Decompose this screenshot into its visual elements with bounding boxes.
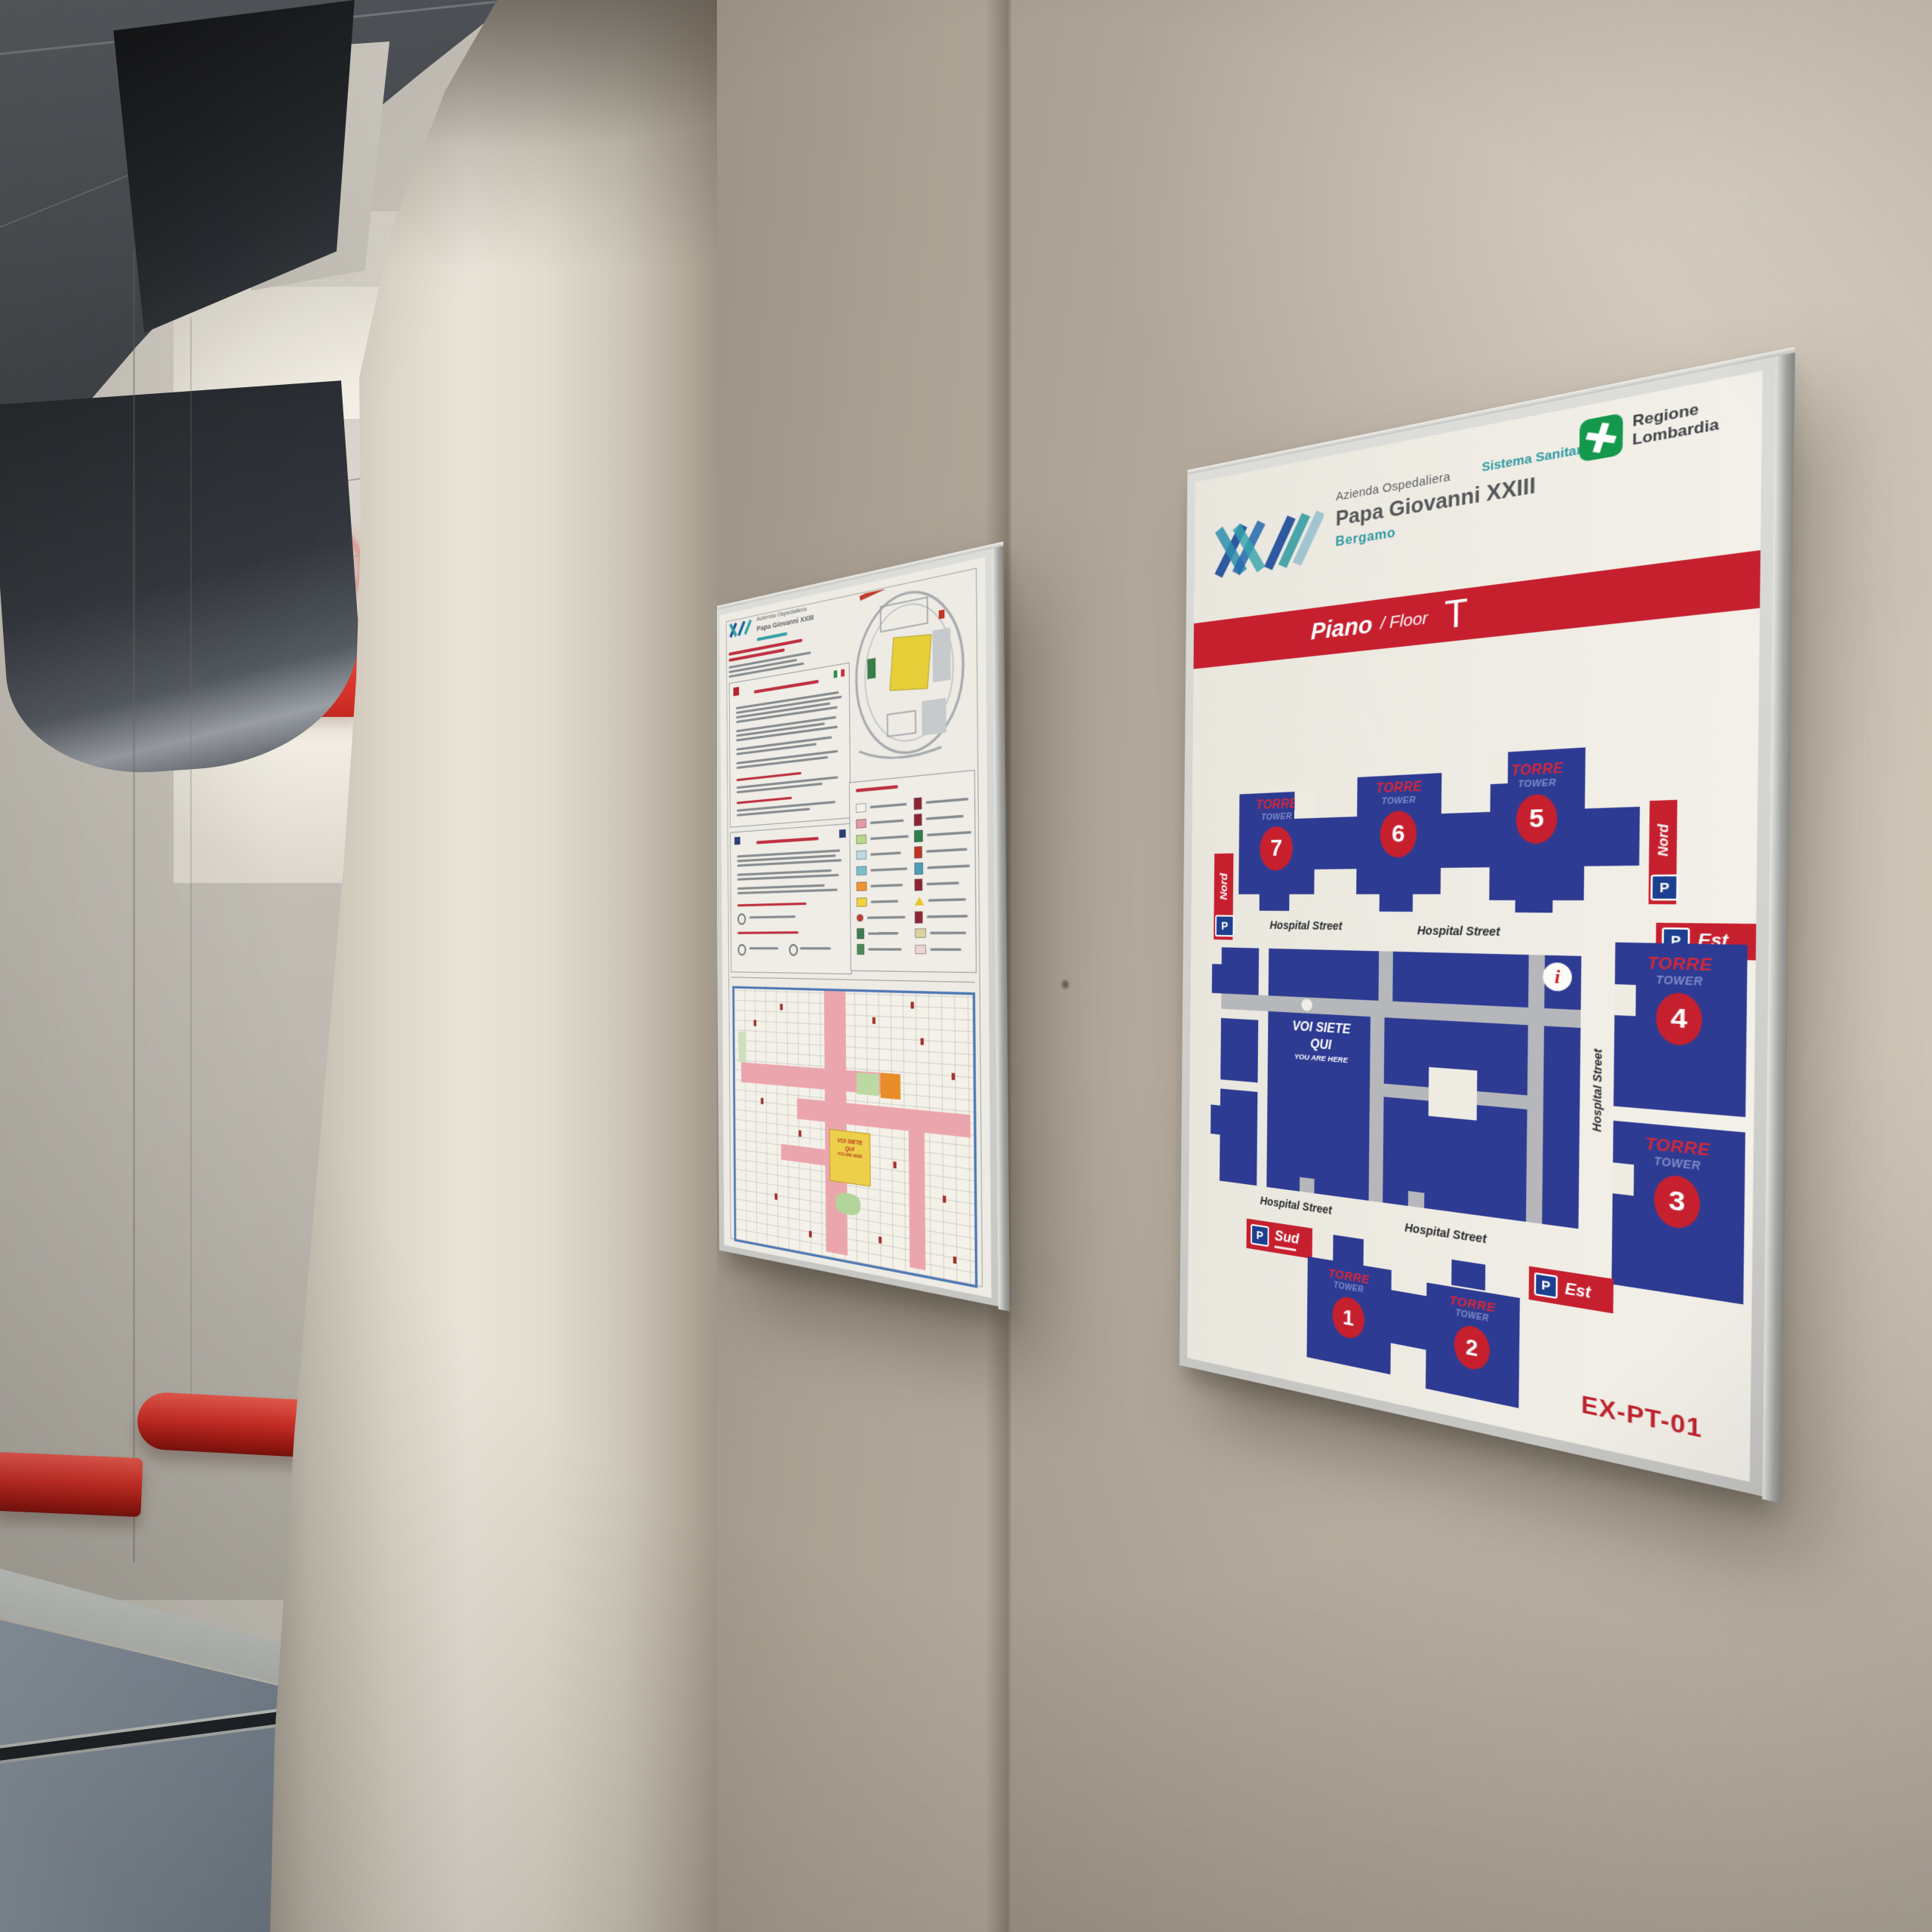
- blurred-label: [930, 931, 966, 934]
- door-tick: [921, 1038, 924, 1045]
- legend-row: [857, 925, 909, 942]
- street-label-vertical: Hospital Street: [1579, 990, 1615, 1192]
- door-tick: [809, 1231, 812, 1238]
- blurred-label: [927, 831, 971, 836]
- blurred-label: [871, 900, 898, 903]
- floor-bar-text: Piano / Floor T: [1311, 588, 1469, 657]
- regione-lombardia-label: Regione Lombardia: [1632, 396, 1719, 450]
- parking-label: Sud: [1275, 1227, 1300, 1247]
- blurred-subtitle: [737, 903, 806, 907]
- legend-row: [857, 877, 909, 895]
- tower-sublabel: TOWER: [1656, 974, 1703, 988]
- legend-ring-icon: [789, 944, 798, 956]
- floor-label-it: Piano: [1311, 611, 1373, 646]
- corner-icon: [734, 837, 740, 845]
- legend-swatch: [915, 878, 923, 891]
- tower-sublabel: TOWER: [1261, 812, 1292, 823]
- floor-plan: VOI SIETE QUI YOU ARE HERE: [732, 986, 977, 1288]
- blurred-label: [867, 916, 906, 919]
- parking-label: Nord: [1218, 872, 1230, 900]
- blurred-label: [927, 881, 959, 885]
- legend-row: [914, 857, 971, 876]
- blurred-text-line: [737, 888, 838, 894]
- street-label: Hospital Street: [1269, 918, 1342, 932]
- building-block: [1220, 1018, 1258, 1083]
- floor-map-sign: Azienda Ospedaliera Papa Giovanni XXIII …: [1180, 356, 1776, 1496]
- ceiling-mounted-fixture: [0, 380, 368, 782]
- orange-room: [881, 1072, 901, 1100]
- legend-swatch: [857, 914, 863, 921]
- building-notch: [1491, 752, 1508, 784]
- corridor-highlight: [781, 1144, 827, 1166]
- parking-p-icon: P: [1534, 1272, 1558, 1299]
- building-notch: [1294, 791, 1315, 819]
- parking-nord-right: Nord P: [1648, 800, 1677, 904]
- blurred-label: [870, 851, 901, 856]
- blurred-label: [927, 915, 968, 918]
- blurred-label: [871, 884, 903, 888]
- blurred-label: [926, 848, 967, 853]
- legend-swatch: [857, 944, 864, 955]
- regione-lombardia-logo: [1580, 413, 1623, 463]
- blurred-label: [868, 948, 902, 950]
- legend-swatch: [856, 851, 866, 860]
- tower-1: TORRE TOWER 1: [1307, 1257, 1392, 1374]
- corridor-highlight: [909, 1131, 925, 1271]
- legend-column-left: [856, 796, 909, 958]
- tower-number: 7: [1260, 826, 1293, 870]
- tower-6: TORRE TOWER 6: [1356, 773, 1441, 894]
- legend-row: [915, 908, 972, 925]
- street-notch: [1408, 1191, 1425, 1208]
- campus-site-map: [848, 571, 973, 774]
- legend-swatch: [857, 881, 867, 891]
- floor-letter: T: [1444, 589, 1468, 638]
- campus-map-sign: Azienda Ospedaliera Papa Giovanni XXIII: [715, 549, 998, 1306]
- blurred-label: [926, 798, 969, 804]
- street-label: Hospital Street: [1589, 1048, 1604, 1132]
- door-tick: [774, 1193, 777, 1200]
- building-block: [1211, 1105, 1220, 1135]
- tower-4: TORRE TOWER 4: [1614, 943, 1747, 1118]
- building-notch: [1614, 984, 1635, 1016]
- blurred-label: [931, 948, 961, 951]
- legend-swatch: [914, 813, 922, 826]
- parking-sud-text: Sud: [1275, 1227, 1300, 1251]
- legend-swatch: [914, 829, 923, 842]
- blurred-subtitle: [737, 772, 801, 781]
- parking-sud: P Sud: [1246, 1219, 1312, 1259]
- tower-number: 1: [1332, 1294, 1364, 1341]
- legend-ring-icon: [737, 913, 746, 924]
- legend-swatch: [857, 897, 867, 906]
- parking-p-icon: P: [1215, 915, 1234, 937]
- xxiii-logo: [1213, 491, 1324, 581]
- legend-ring-icon: [738, 944, 746, 955]
- blurred-label: [870, 820, 904, 825]
- courtyard: [1429, 1067, 1478, 1121]
- blurred-text-line: [737, 884, 825, 890]
- street-label: Hospital Street: [1404, 1220, 1487, 1246]
- parking-label: Est: [1564, 1279, 1591, 1302]
- parking-label: Nord: [1654, 823, 1672, 857]
- blurred-label: [870, 803, 907, 808]
- blurred-text-line: [749, 947, 778, 949]
- you-are-here-dot: [1301, 998, 1312, 1011]
- legend-row: [857, 893, 909, 910]
- building-connector: [1391, 1290, 1426, 1349]
- blurred-label: [926, 815, 964, 820]
- legend-row: [915, 891, 972, 909]
- tower-number: 3: [1654, 1174, 1700, 1231]
- legend-swatch: [856, 835, 866, 844]
- legend-row: [915, 874, 972, 893]
- hospital-corridor-photo: Azienda Ospedaliera Papa Giovanni XXIII: [0, 0, 1932, 1932]
- warning-triangle-icon: [915, 897, 924, 906]
- sign-face: Azienda Ospedaliera Papa Giovanni XXIII: [720, 557, 992, 1298]
- green-area: [738, 1032, 746, 1063]
- legend-swatch: [914, 846, 922, 858]
- blurred-label: [927, 865, 970, 869]
- you-are-here-box: VOI SIETE QUI YOU ARE HERE: [829, 1129, 871, 1187]
- door-tick: [761, 1098, 764, 1105]
- tower-number: 6: [1380, 811, 1417, 858]
- floor-map: TORRE TOWER 7 TORRE TOWER 6 TORRE TOWER …: [1207, 718, 1752, 1446]
- green-area: [857, 1072, 879, 1096]
- street-label: Hospital Street: [1260, 1194, 1332, 1217]
- tower-number: 5: [1516, 794, 1558, 844]
- door-tick: [878, 1236, 881, 1244]
- door-tick: [780, 1004, 783, 1010]
- tower-label: TORRE: [1256, 797, 1297, 813]
- corridor-highlight: [797, 1098, 971, 1137]
- wall-mark: [1061, 980, 1069, 989]
- legend-swatch: [857, 928, 864, 939]
- tower-2: TORRE TOWER 2: [1426, 1282, 1520, 1407]
- legend-row: [857, 860, 909, 878]
- blurred-label: [870, 835, 909, 840]
- blurred-label: [868, 932, 898, 935]
- legend-swatch: [915, 862, 924, 874]
- legend-title: [856, 785, 898, 792]
- street-notch: [1300, 1177, 1315, 1194]
- you-are-here-label: VOI SIETE QUI YOU ARE HERE: [1273, 1018, 1370, 1068]
- door-tick: [911, 1001, 914, 1008]
- building-block: [1212, 964, 1222, 993]
- tower-label: TORRE: [1647, 954, 1713, 975]
- tower-sublabel: TOWER: [1518, 777, 1556, 789]
- italy-flag-icon: [834, 669, 844, 678]
- legend-box: [849, 770, 977, 973]
- internal-street: [1369, 1017, 1385, 1202]
- legend-swatch: [857, 866, 867, 875]
- building-tab: [1515, 888, 1553, 912]
- sign-face: Azienda Ospedaliera Papa Giovanni XXIII …: [1187, 371, 1762, 1481]
- building-tab: [1451, 1260, 1485, 1291]
- legend-swatch: [915, 945, 926, 955]
- info-text-box: [729, 663, 851, 828]
- blurred-title: [756, 837, 819, 844]
- blurred-label: [928, 898, 966, 902]
- sistema-sanitario-label: Sistema Sanitario: [1481, 440, 1594, 475]
- floor-label-en: / Floor: [1380, 608, 1428, 634]
- tower-number: 2: [1454, 1323, 1491, 1373]
- parking-subcaption: [1275, 1245, 1297, 1251]
- legend-swatch: [914, 797, 922, 810]
- legend-swatch: [856, 819, 866, 829]
- blurred-title: [754, 680, 819, 694]
- blurred-subtitle: [737, 931, 798, 934]
- red-handrail: [0, 1452, 143, 1517]
- building-tab: [1380, 888, 1413, 912]
- rosa-camuna-icon: [1580, 413, 1623, 463]
- building-notch: [1613, 1162, 1634, 1195]
- legend-swatch: [856, 803, 866, 813]
- legend-row: [857, 941, 909, 957]
- wall-corner-line: [133, 249, 135, 1562]
- parking-p-icon: P: [1651, 875, 1678, 901]
- building-tab: [1260, 889, 1290, 911]
- legend-row: [915, 924, 972, 941]
- parking-est-lower: P Est: [1529, 1266, 1614, 1314]
- tower-number: 4: [1656, 992, 1703, 1047]
- legend-column-right: [914, 790, 973, 958]
- corner-icon: [839, 829, 846, 838]
- internal-street: [1526, 955, 1545, 1224]
- blurred-label: [870, 867, 907, 872]
- legend-swatch: [915, 911, 923, 923]
- door-tick: [952, 1073, 955, 1081]
- tower-label: TORRE: [1376, 780, 1423, 797]
- building-block: [1220, 1088, 1257, 1186]
- blurred-subtitle: [737, 797, 792, 804]
- street-label: Hospital Street: [1417, 924, 1500, 939]
- door-tick: [943, 1195, 946, 1203]
- parking-nord-left: Nord P: [1214, 854, 1233, 940]
- tower-sublabel: TOWER: [1381, 795, 1416, 807]
- internal-street: [1378, 951, 1392, 1001]
- wall-corner-line: [190, 317, 192, 1449]
- door-tick: [953, 1257, 956, 1264]
- legend-row: [915, 941, 972, 958]
- blurred-text-line: [749, 915, 796, 918]
- legend-swatch: [915, 928, 926, 938]
- parking-p-icon: P: [1251, 1224, 1269, 1247]
- emergency-text-box: [730, 823, 852, 974]
- tower-3: TORRE TOWER 3: [1611, 1121, 1745, 1305]
- door-tick: [872, 1017, 875, 1024]
- door-tick: [798, 1131, 801, 1137]
- blurred-text-line: [800, 947, 831, 949]
- legend-row: [857, 909, 909, 925]
- door-tick: [894, 1161, 897, 1168]
- door-tick: [754, 1020, 757, 1026]
- flag-icon: [734, 687, 740, 696]
